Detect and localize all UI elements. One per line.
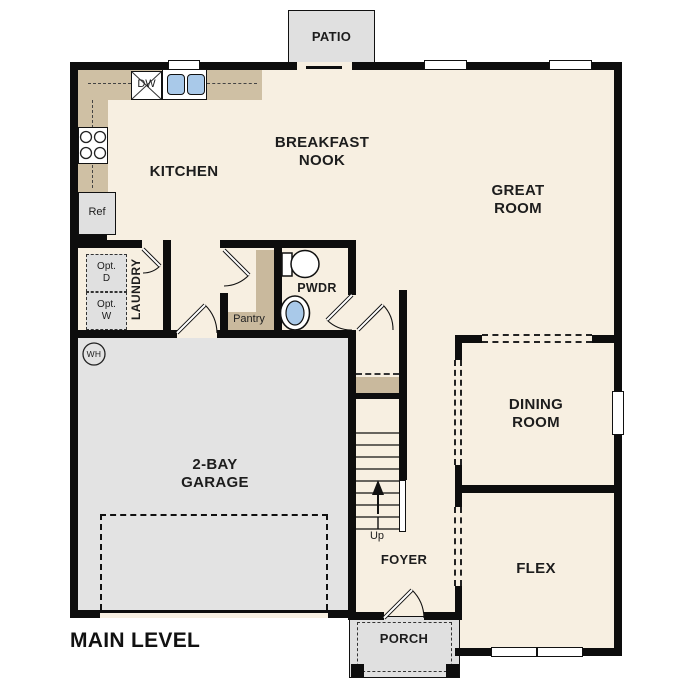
pantry-label: Pantry — [220, 313, 278, 326]
breakfast-nook-label: BREAKFAST NOOK — [242, 134, 402, 170]
breakfast-nook-line1: BREAKFAST — [242, 134, 402, 152]
wall-foyer-bottom-b — [424, 612, 462, 620]
dining-room-label: DINING ROOM — [476, 396, 596, 432]
great-room-line2: ROOM — [458, 200, 578, 218]
stairs-up-label: Up — [357, 530, 397, 543]
wall-kitchen-south-b — [220, 240, 356, 248]
window-flex-1 — [491, 647, 537, 657]
opening-flex-left — [454, 507, 462, 586]
closet-shelf — [356, 377, 399, 393]
stair-railing — [399, 480, 406, 532]
optional-washer-label: Opt. W — [86, 299, 127, 322]
powder-room-label: PWDR — [287, 281, 347, 296]
pantry-shelf-vertical — [256, 250, 274, 312]
window-great-room-1 — [424, 60, 467, 70]
laundry-label: LAUNDRY — [129, 249, 143, 329]
breakfast-nook-line2: NOOK — [242, 152, 402, 170]
wall-closet-bottom — [348, 393, 407, 399]
porch-inner-dashed — [357, 622, 452, 672]
opt-d-line2: D — [86, 273, 127, 285]
dining-room-line1: DINING — [476, 396, 596, 414]
porch-label: PORCH — [354, 631, 454, 647]
dining-room-line2: ROOM — [476, 414, 596, 432]
opt-d-line1: Opt. — [86, 261, 127, 273]
opening-great-dining — [482, 334, 592, 343]
porch-post-left — [351, 664, 364, 677]
wall-laundry-right — [163, 240, 171, 338]
wall-garage-top-a — [70, 330, 177, 338]
optional-dryer-label: Opt. D — [86, 261, 127, 284]
closet-shelf-dash — [356, 373, 399, 375]
patio-label: PATIO — [288, 29, 375, 45]
garage-line1: 2-BAY — [145, 456, 285, 474]
refrigerator-label: Ref — [78, 206, 116, 219]
foyer-label: FOYER — [354, 552, 454, 568]
porch-post-right — [446, 664, 459, 677]
garage-line2: GARAGE — [145, 474, 285, 492]
wall-dining-left-post-a — [455, 335, 462, 360]
patio-slider-line — [306, 66, 342, 69]
wall-stair-right — [399, 290, 407, 480]
wall-exterior-right — [614, 62, 622, 656]
sink-basin-left — [167, 74, 185, 95]
wall-garage-bottom-a — [70, 610, 100, 618]
garage-label: 2-BAY GARAGE — [145, 456, 285, 492]
window-dining — [612, 391, 624, 435]
great-room-label: GREAT ROOM — [458, 182, 578, 218]
wall-foyer-bottom-a — [356, 612, 384, 620]
wall-kitchen-south-a — [70, 240, 142, 248]
wall-dining-flex-divider — [455, 485, 622, 493]
opening-dining-left — [454, 360, 462, 465]
counter-dash-a — [88, 83, 131, 84]
wall-exterior-left — [70, 62, 78, 618]
window-great-room-2 — [549, 60, 592, 70]
wall-garage-right — [348, 330, 356, 620]
water-heater-label: WH — [83, 349, 105, 359]
garage-door-line — [100, 610, 328, 613]
counter-dash-b — [207, 83, 257, 84]
garage-door-dashed — [100, 514, 328, 610]
opt-w-line2: W — [86, 311, 127, 323]
cooktop-box — [78, 127, 108, 164]
flex-label: FLEX — [476, 560, 596, 578]
window-flex-2 — [537, 647, 583, 657]
wall-garage-bottom-b — [328, 610, 356, 618]
sink-basin-right — [187, 74, 205, 95]
wall-powder-right — [348, 248, 356, 295]
wall-garage-top-b — [217, 330, 356, 338]
great-room-line1: GREAT — [458, 182, 578, 200]
floor-plan: PATIO BREAKFAST NOOK KITCHEN GREAT ROOM … — [0, 0, 687, 687]
opt-w-line1: Opt. — [86, 299, 127, 311]
main-level-title: MAIN LEVEL — [70, 628, 270, 653]
dishwasher-label: DW — [131, 78, 162, 91]
wall-dining-top-b — [592, 335, 622, 343]
kitchen-label: KITCHEN — [124, 163, 244, 181]
